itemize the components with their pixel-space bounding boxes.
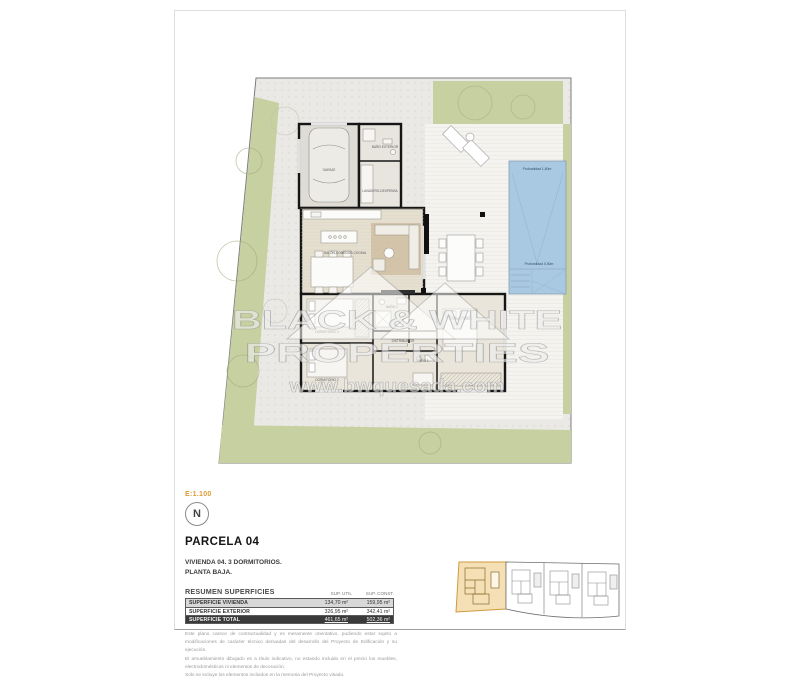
summary-table-header: RESUMEN SUPERFICIES SUP. UTIL SUP. CONST… (185, 587, 394, 596)
north-arrow-icon: N (185, 502, 209, 526)
disclaimer-p2: El amueblamiento dibujado es a título in… (185, 656, 397, 672)
row-const-value: 159,95 m² (348, 600, 390, 606)
summary-table-title: RESUMEN SUPERFICIES (185, 587, 310, 596)
row-util-value: 134,70 m² (306, 600, 348, 606)
subtitle-line2: PLANTA BAJA. (185, 568, 417, 578)
table-row-vivienda: SUPERFICIE VIVIENDA 134,70 m² 159,95 m² (185, 598, 394, 607)
pool-depth-deep-label: Profundidad 1,60m (523, 167, 552, 171)
outdoor-dining (439, 235, 483, 281)
title-block: E:1.100 N PARCELA 04 VIVIENDA 04. 3 DORM… (185, 491, 417, 681)
watermark-url: www.bwquesada.com (288, 376, 504, 396)
row-label: SUPERFICIE VIVIENDA (189, 600, 306, 606)
disclaimer-p1: Este plano carece de contractualidad y e… (185, 631, 397, 655)
plan-subtitle: VIVIENDA 04. 3 DORMITORIOS. PLANTA BAJA. (185, 558, 417, 578)
key-plan (443, 556, 625, 628)
row-const-value: 502,36 m² (348, 617, 390, 623)
row-util-value: 326,95 m² (306, 609, 348, 615)
watermark-line2: PROPERTIES (245, 338, 550, 368)
drawing-sheet: Profundidad 1,60m Profundidad 0,50m (174, 10, 626, 630)
north-letter: N (193, 508, 201, 520)
row-label: SUPERFICIE EXTERIOR (189, 609, 306, 615)
row-const-value: 342,41 m² (348, 609, 390, 615)
site-plan: Profundidad 1,60m Profundidad 0,50m (175, 11, 627, 487)
col-sup-const: SUP. CONST. (352, 591, 394, 596)
room-label-bano-exterior: BAÑO EXTERIOR (372, 144, 399, 149)
room-label-lavadero: LAVADERO-DESPENSA (362, 189, 398, 193)
subtitle-line1: VIVIENDA 04. 3 DORMITORIOS. (185, 558, 417, 568)
key-plan-parcel-04-highlight (456, 562, 506, 612)
table-row-exterior: SUPERFICIE EXTERIOR 326,95 m² 342,41 m² (185, 607, 394, 616)
scale-label: E:1.100 (185, 491, 417, 498)
room-label-garaje: GARAJE (323, 168, 336, 172)
disclaimer-p3: Solo se incluye los elementos incluidos … (185, 672, 397, 680)
watermark-line1: BLACK & WHITE (232, 305, 562, 335)
page-title: PARCELA 04 (185, 536, 417, 548)
row-util-value: 461,65 m² (306, 617, 348, 623)
summary-table: RESUMEN SUPERFICIES SUP. UTIL SUP. CONST… (185, 587, 394, 624)
key-plan-parcels (506, 562, 619, 618)
disclaimer: Este plano carece de contractualidad y e… (185, 631, 397, 680)
col-sup-util: SUP. UTIL (310, 591, 352, 596)
table-row-total: SUPERFICIE TOTAL 461,65 m² 502,36 m² (185, 615, 394, 624)
pool-depth-shallow-label: Profundidad 0,50m (525, 262, 554, 266)
pool: Profundidad 1,60m Profundidad 0,50m (509, 161, 566, 294)
row-label: SUPERFICIE TOTAL (189, 617, 306, 623)
room-label-salon: SALÓN-COMEDOR-COCINA (324, 250, 367, 255)
